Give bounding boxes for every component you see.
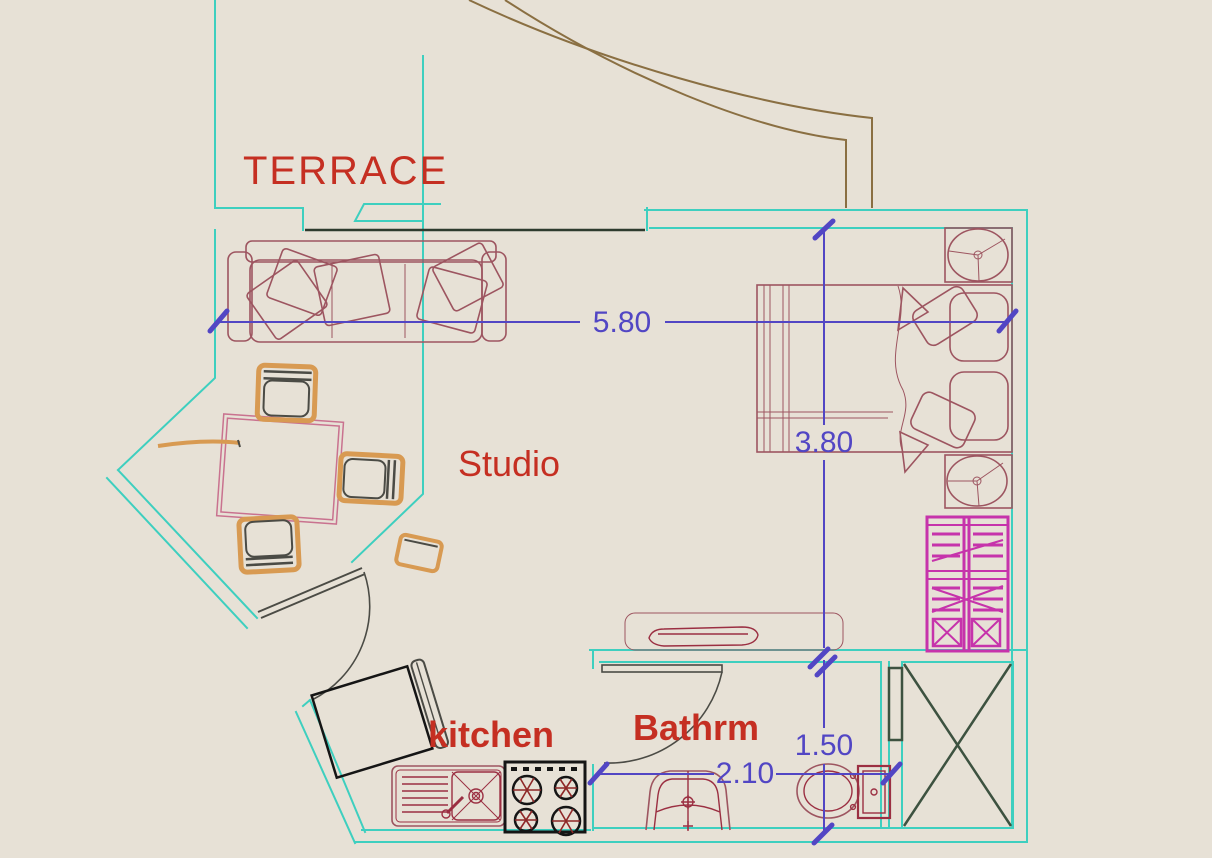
dimension-label-2-10: 2.10 xyxy=(716,757,774,790)
floor-plan-canvas: 5.80 3.80 1.50 2.10 TERRACE Studio kitch… xyxy=(0,0,1212,858)
terrace-label: TERRACE xyxy=(243,149,448,193)
paper-background xyxy=(0,0,1212,858)
bathroom-label: Bathrm xyxy=(633,707,759,748)
studio-label: Studio xyxy=(458,443,560,484)
dimension-label-3-80: 3.80 xyxy=(795,426,853,459)
floor-plan: 5.80 3.80 1.50 2.10 TERRACE Studio kitch… xyxy=(0,0,1212,858)
dimension-label-5-80: 5.80 xyxy=(593,306,651,339)
dimension-label-1-50: 1.50 xyxy=(795,729,853,762)
kitchen-label: kitchen xyxy=(428,714,554,755)
